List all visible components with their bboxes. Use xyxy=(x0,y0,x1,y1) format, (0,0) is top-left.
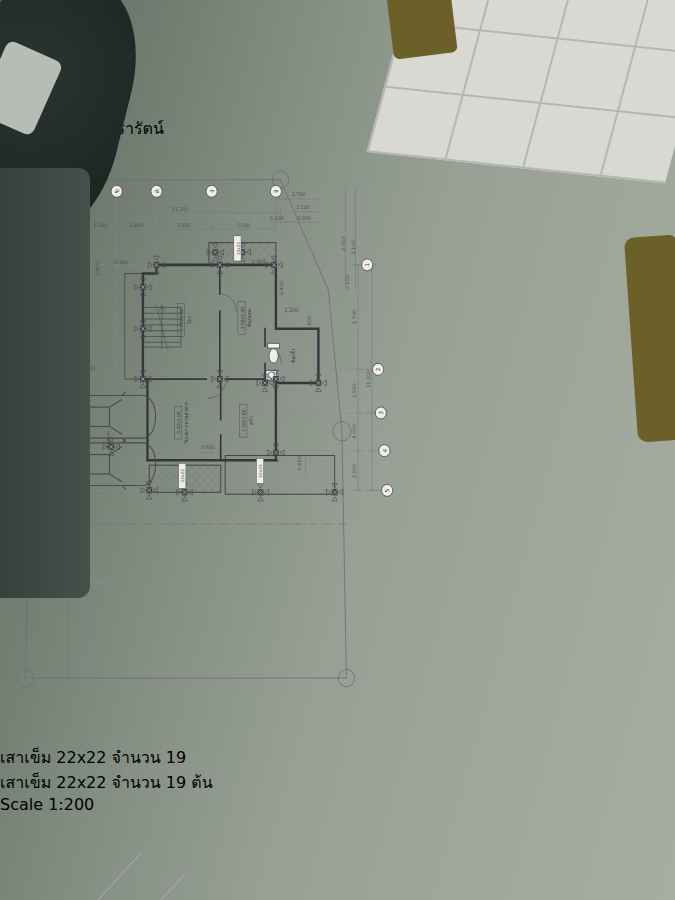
room-size: 4.40x4.00 xyxy=(176,411,181,434)
pile-tag-text: 22x22 xyxy=(181,469,186,483)
dim-label: 1.100 xyxy=(284,307,298,313)
grid-row-label: 4 xyxy=(382,448,388,452)
room-label: 3.50x5.30ห้องนอน xyxy=(238,302,252,335)
dim-label: 0.800 xyxy=(306,316,312,331)
dim-label: 2.000 xyxy=(297,215,311,221)
pile-tag-text: 22x22 xyxy=(258,464,263,478)
dim-label: 0.400 xyxy=(278,281,284,296)
olive-chair-leg xyxy=(386,0,458,60)
dim-label: 2.000 xyxy=(352,464,358,479)
room-name: ห้องน้ำ xyxy=(290,348,296,363)
dim-label: 2.000 xyxy=(340,236,346,251)
grid-column-label: จ xyxy=(273,190,279,193)
photo-scene: NORTH W E S ผังเข็ม ผัง 55 / วรารัตน์ xyxy=(0,0,675,900)
dim-label: 2.400 xyxy=(130,222,144,228)
dim-label: 2.700 xyxy=(292,191,306,197)
grid-row-label: 2 xyxy=(375,368,381,372)
room-label: 4.40x4.00รับแขก+ทานอาหาร xyxy=(175,401,189,444)
room-label: ห้องน้ำ xyxy=(290,348,296,363)
room-size: 3.35x6.00 xyxy=(179,309,184,332)
pile-note-qty: 19 xyxy=(166,773,186,792)
grid-row-label: 3 xyxy=(378,411,384,415)
scale-label: Scale 1:200 xyxy=(0,795,675,814)
dim-label: 2.100 xyxy=(296,204,310,210)
dim-label: 2.500 xyxy=(352,383,358,398)
room-size: 3.50x4.00 xyxy=(241,409,246,432)
room-name: ห้องนอน xyxy=(247,308,252,327)
pile-note-unit: ต้น xyxy=(191,773,212,792)
dim-label: 0.400 xyxy=(252,258,266,264)
pile-note-qty-label: จำนวน xyxy=(112,773,161,792)
toilet-icon xyxy=(269,349,278,364)
dim-label: 0.400 xyxy=(94,261,100,276)
room-label: 3.50x4.00ครัว xyxy=(240,404,254,437)
pile-tag: 22x22 xyxy=(179,463,186,488)
dim-label: 3.500 xyxy=(236,222,250,228)
grid-column-label: ง xyxy=(209,190,215,193)
dim-label: 11.250 xyxy=(172,206,189,212)
room-name: รับแขก+ทานอาหาร xyxy=(184,401,189,444)
dim-label: 2.000 xyxy=(94,222,108,228)
ghost-qty: 19 xyxy=(166,748,186,767)
room-name: ครัว xyxy=(249,416,254,425)
dim-label: 0.600 xyxy=(201,444,215,450)
room-label: 3.35x6.00โถง xyxy=(177,304,191,337)
dim-label: 0.400 xyxy=(114,259,128,265)
dim-label: 12.200 xyxy=(365,370,371,388)
ghost-qty-label: จำนวน xyxy=(112,748,161,767)
toilet-tank xyxy=(268,343,280,348)
pile-tag: 22x22 xyxy=(234,236,241,261)
grid-column-label: ค xyxy=(154,189,160,193)
dim-label: 3.350 xyxy=(177,222,191,228)
dim-label: 0.100 xyxy=(270,215,284,221)
generated-annotations: กขคงจ123451.65011.2502.0002.4003.3503.50… xyxy=(53,185,393,501)
room-name: โถง xyxy=(186,316,192,324)
pile-tag: 22x22 xyxy=(256,458,263,483)
grid-row-label: 1 xyxy=(364,263,370,267)
table-edge-shadow xyxy=(0,168,90,598)
grid-row-label: 5 xyxy=(384,488,390,492)
curled-sheet: 1.500 1 xyxy=(0,814,675,900)
dim-label: 0.100 xyxy=(344,275,350,290)
dim-label: 2.100 xyxy=(350,240,356,255)
pile-note: เสาเข็ม 22x22 จำนวน 19 ต้น xyxy=(0,770,675,795)
dim-label: 3.700 xyxy=(352,310,358,325)
dim-label: 0.650 xyxy=(296,456,302,471)
handwritten-mark xyxy=(90,573,103,584)
pile-tag-text: 22x22 xyxy=(236,241,241,255)
dim-label: 4.000 xyxy=(352,424,358,439)
room-size: 3.50x5.30 xyxy=(240,307,245,330)
show-through-text: เสาเข็ม 22x22 จำนวน 19 xyxy=(0,745,675,770)
grid-column-label: ข xyxy=(114,189,120,193)
fabric-knee xyxy=(0,538,76,900)
